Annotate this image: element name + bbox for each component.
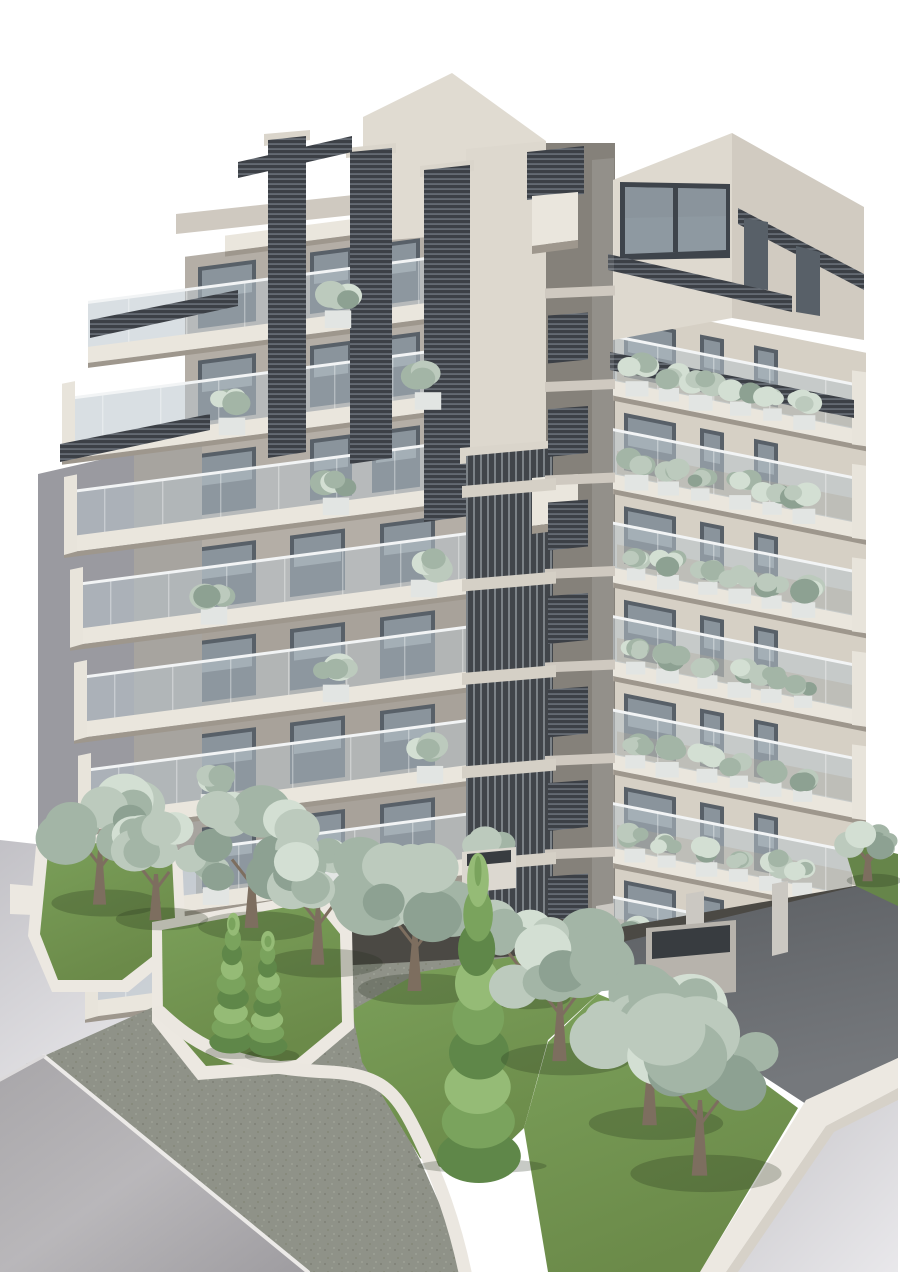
- right-tower-window-mullion: [673, 188, 678, 252]
- glass-joint: [102, 395, 103, 440]
- sage-foliage: [141, 811, 181, 846]
- slot-louver-window: [548, 780, 588, 831]
- shrub-foliage: [650, 839, 667, 853]
- shrub-foliage: [632, 640, 648, 654]
- glass-joint: [825, 567, 826, 612]
- shrub-foliage: [666, 458, 690, 478]
- glass-joint: [825, 848, 826, 893]
- planter-box: [763, 408, 782, 420]
- sage-foliage: [403, 890, 462, 942]
- planter-box: [697, 769, 718, 783]
- shrub-foliage: [729, 472, 750, 490]
- planter-box: [417, 766, 443, 784]
- pilotis-column-3: [772, 881, 788, 956]
- planter-box: [794, 696, 812, 708]
- sage-foliage: [402, 843, 459, 893]
- glass-joint: [458, 536, 459, 581]
- planter-box: [729, 495, 751, 510]
- planter-box: [792, 883, 812, 896]
- slot-white-box-1: [532, 192, 578, 246]
- planter-box: [325, 310, 351, 328]
- right-balcony-end-return: [852, 557, 866, 633]
- shrub-foliage: [421, 548, 445, 569]
- planter-box: [625, 381, 648, 396]
- cypress-tip: [475, 856, 482, 886]
- louver-col-1: [268, 136, 306, 458]
- planter-box: [793, 415, 815, 430]
- right-balcony-end-return: [852, 651, 866, 727]
- shrub-foliage: [622, 551, 639, 565]
- shrub-foliage: [629, 456, 652, 475]
- planter-box: [689, 395, 713, 411]
- sage-foliage: [196, 791, 239, 829]
- louver-col-3: [424, 165, 470, 522]
- shrub-foliage: [209, 765, 235, 788]
- shrub-foliage: [193, 585, 220, 608]
- shrub-foliage: [794, 772, 816, 791]
- shrub-foliage: [324, 471, 345, 489]
- sage-foliage: [45, 802, 97, 848]
- cypress-tip: [265, 936, 272, 947]
- shrub-foliage: [724, 763, 739, 776]
- shrub-foliage: [730, 659, 750, 676]
- planter-box: [627, 568, 645, 580]
- planter-box: [760, 782, 782, 796]
- glass-joint: [278, 466, 279, 511]
- glass-joint: [284, 559, 285, 604]
- shrub-foliage: [656, 557, 679, 577]
- shrub-foliage: [784, 675, 806, 694]
- glass-joint: [418, 261, 419, 306]
- planter-box: [729, 869, 748, 882]
- right-tower-side-window-1: [744, 218, 768, 290]
- slot-louver-window: [548, 687, 588, 738]
- shrub-foliage: [656, 735, 679, 754]
- sage-foliage: [845, 821, 876, 848]
- planter-box: [625, 755, 645, 768]
- planter-box: [730, 402, 751, 416]
- right-balcony-end-return: [852, 370, 866, 446]
- shrub-foliage: [733, 853, 747, 865]
- tree-shadow: [116, 907, 208, 930]
- corner-louver-box: [527, 146, 584, 200]
- slot-glass-hint: [592, 158, 614, 940]
- shrub-foliage: [757, 760, 778, 778]
- planter-box: [728, 682, 751, 698]
- shrub-foliage: [633, 828, 649, 841]
- shrub-foliage: [688, 474, 703, 486]
- planter-box: [762, 502, 781, 515]
- shrub-foliage: [695, 370, 715, 387]
- planter-box: [761, 689, 782, 703]
- shrub-foliage: [410, 368, 435, 390]
- shrub-foliage: [784, 862, 806, 880]
- planter-box: [411, 580, 437, 598]
- sage-foliage: [623, 993, 705, 1065]
- glass-joint: [334, 365, 335, 410]
- planter-box: [624, 849, 645, 863]
- shrub-foliage: [655, 369, 679, 389]
- planter-box: [728, 589, 751, 604]
- shrub-foliage: [667, 646, 690, 666]
- glass-joint: [400, 544, 401, 589]
- glass-joint: [230, 659, 231, 704]
- glass-joint: [350, 737, 351, 782]
- louver-col-2: [350, 148, 392, 464]
- glass-joint: [244, 283, 245, 328]
- shrub-foliage: [337, 290, 359, 309]
- planter-box: [659, 388, 679, 402]
- shrub-foliage: [784, 485, 802, 500]
- planter-box: [730, 776, 748, 788]
- glass-joint: [394, 451, 395, 496]
- glass-joint: [104, 489, 105, 534]
- shrub-foliage: [790, 579, 819, 604]
- sage-foliage: [274, 842, 319, 882]
- glass-joint: [176, 760, 177, 805]
- slot-louver-window: [548, 593, 588, 644]
- shrub-foliage: [756, 573, 778, 591]
- glass-joint: [462, 629, 463, 674]
- planter-box: [792, 602, 816, 618]
- planter-box: [691, 488, 710, 500]
- render-canvas: [0, 0, 900, 1272]
- right-tower-side-window-2: [796, 246, 820, 316]
- glass-joint: [342, 551, 343, 596]
- shrub-foliage: [313, 662, 333, 679]
- left-balcony-side-return: [74, 660, 87, 741]
- glass-joint: [220, 474, 221, 519]
- glass-joint: [168, 574, 169, 619]
- shrub-foliage: [768, 850, 789, 868]
- planter-box: [658, 482, 679, 496]
- shrub-foliage: [617, 357, 640, 377]
- shrub-foliage: [757, 386, 779, 405]
- planter-box: [625, 475, 649, 491]
- shrub-foliage: [622, 738, 638, 752]
- shrub-foliage: [222, 391, 250, 415]
- right-balcony-end-return: [852, 464, 866, 540]
- right-balcony-end-return: [852, 744, 866, 820]
- planter-box: [415, 392, 441, 410]
- planter-box: [323, 498, 349, 516]
- glass-joint: [825, 754, 826, 799]
- sage-foliage: [363, 884, 405, 921]
- planter-box: [626, 662, 645, 675]
- planter-box: [201, 607, 227, 625]
- shrub-foliage: [795, 396, 813, 412]
- shrub-foliage: [416, 739, 440, 759]
- glass-joint: [825, 661, 826, 706]
- shrub-foliage: [691, 658, 715, 678]
- planter-box: [658, 856, 676, 868]
- slot-louver-window: [548, 500, 588, 551]
- glass-joint: [404, 637, 405, 682]
- glass-joint: [825, 474, 826, 519]
- planter-box: [698, 582, 717, 595]
- glass-joint: [392, 358, 393, 403]
- shrub-foliage: [718, 570, 739, 587]
- shrub-foliage: [691, 836, 715, 856]
- planter-box: [657, 575, 679, 590]
- glass-joint: [162, 481, 163, 526]
- planter-box: [793, 509, 816, 524]
- left-balcony-side-return: [70, 567, 83, 648]
- planter-box: [696, 862, 718, 876]
- slot-louver-window: [548, 406, 588, 457]
- architectural-render: [0, 0, 900, 1272]
- glass-joint: [288, 652, 289, 697]
- shrub-foliage: [666, 840, 682, 853]
- glass-joint: [172, 667, 173, 712]
- planter-box: [219, 418, 245, 436]
- planter-box: [323, 685, 349, 703]
- shrub-foliage: [202, 863, 235, 891]
- glass-joint: [110, 581, 111, 626]
- cypress-tip: [229, 917, 236, 930]
- glass-joint: [292, 745, 293, 790]
- tree-shadow: [847, 874, 900, 888]
- glass-joint: [114, 674, 115, 719]
- slot-louver-window: [548, 313, 588, 364]
- left-balcony-side-return: [64, 474, 77, 555]
- planter-box: [655, 762, 678, 778]
